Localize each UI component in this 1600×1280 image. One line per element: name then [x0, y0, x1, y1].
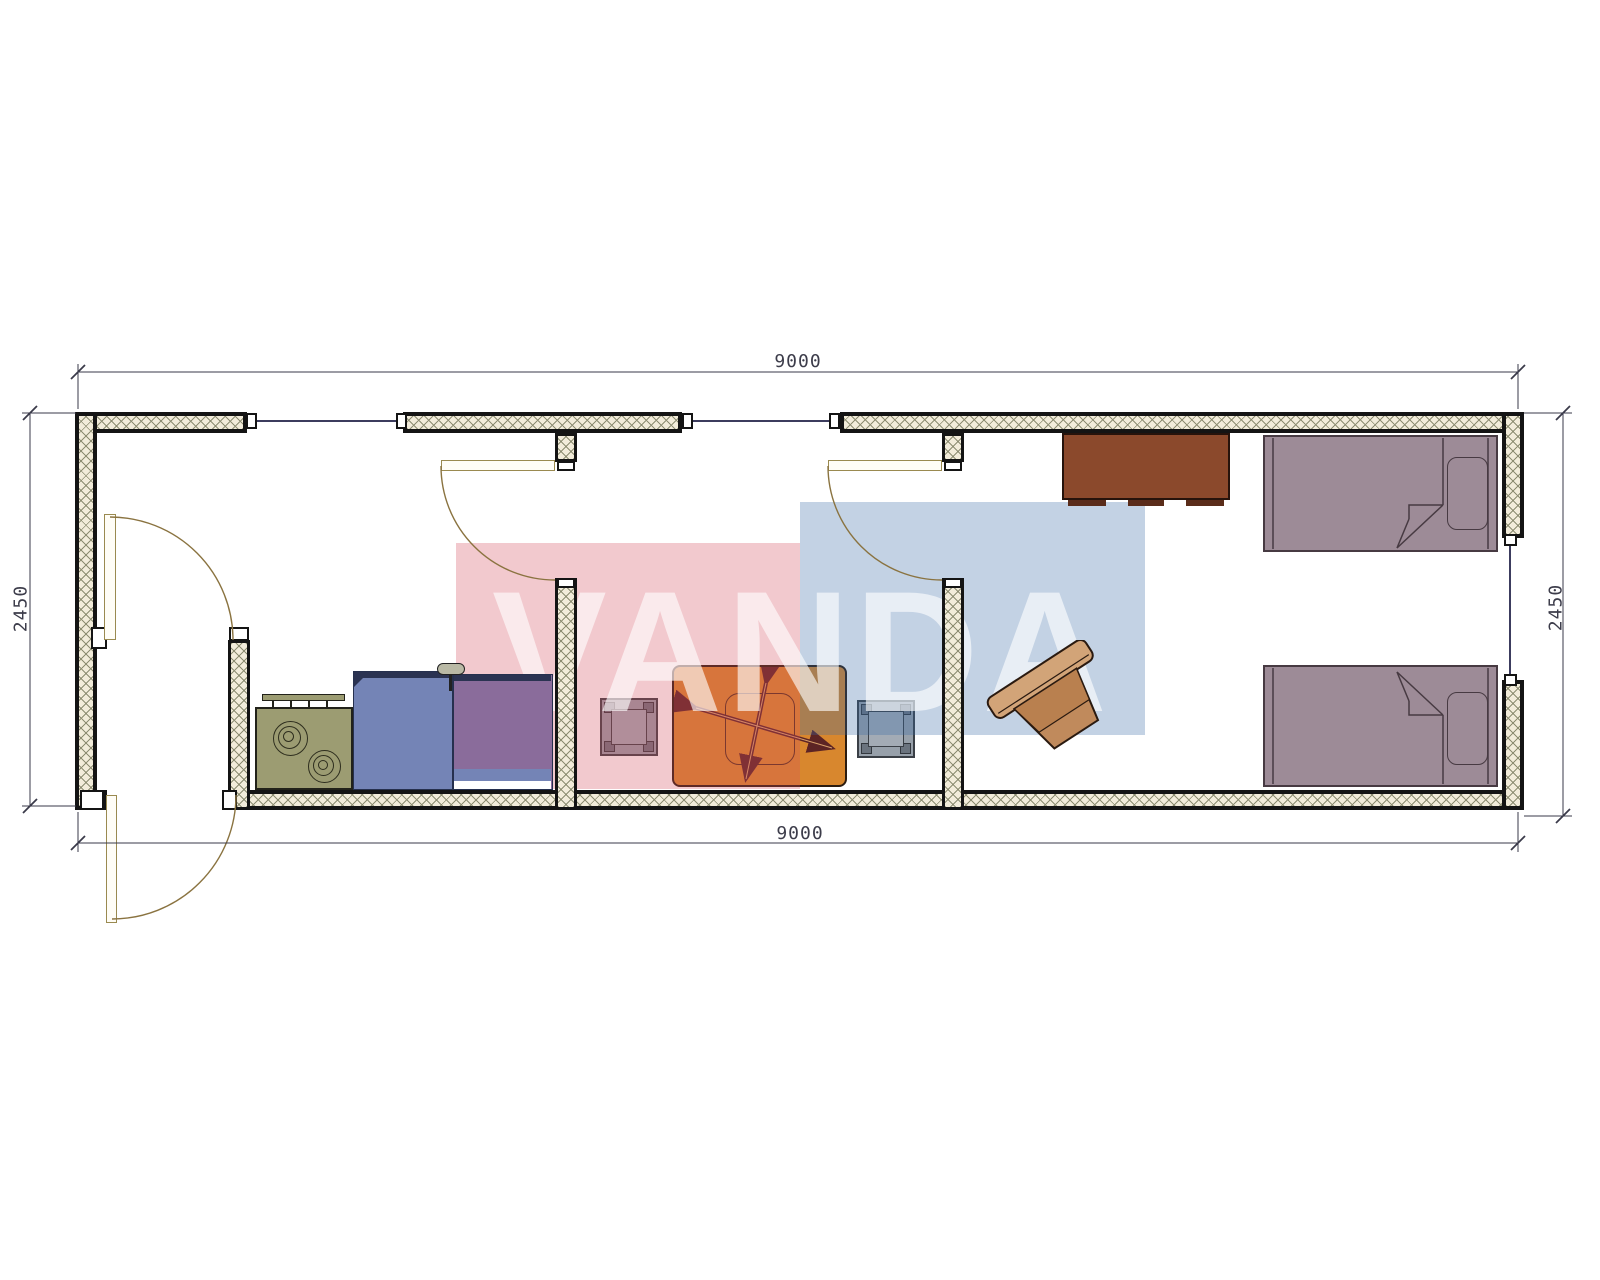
cabinet-foot — [1128, 500, 1164, 506]
partition-entry-kitchen — [228, 640, 250, 810]
dimension-right: 2450 — [1546, 568, 1567, 648]
faucet-stem — [449, 675, 452, 691]
rack-leg — [326, 701, 328, 708]
counter-corner-mark — [354, 678, 363, 687]
window-jamb — [396, 413, 407, 429]
pillow — [1447, 457, 1488, 530]
door-leaf-entrance — [106, 795, 117, 923]
dimension-bottom: 9000 — [760, 823, 840, 844]
dimension-left: 2450 — [11, 569, 32, 649]
rack-leg — [290, 701, 292, 708]
wall-top-segment-2 — [403, 412, 682, 433]
faucet — [437, 663, 465, 675]
door-arc-entrance — [112, 795, 236, 919]
door-jamb — [557, 461, 575, 471]
stove-burner — [273, 721, 308, 756]
dimension-top: 9000 — [758, 351, 838, 372]
window-jamb — [1504, 674, 1517, 686]
window-jamb — [682, 413, 693, 429]
rack-leg — [272, 701, 274, 708]
stove-burner — [308, 750, 341, 783]
sink-base-band — [454, 769, 551, 781]
bed-bottom — [1263, 665, 1498, 787]
sink-base — [454, 781, 551, 789]
floor-plan-canvas: VANDA — [0, 0, 1600, 1280]
stove — [255, 707, 353, 790]
partition-dining-bedroom — [942, 578, 964, 810]
bed-top — [1263, 435, 1498, 552]
door-jamb — [222, 790, 237, 810]
door-jamb — [80, 790, 104, 810]
desk-chair — [985, 640, 1125, 760]
wall-left — [75, 412, 97, 810]
sink-unit — [453, 674, 553, 790]
door-jamb — [557, 578, 575, 588]
door-jamb — [944, 578, 962, 588]
wall-top-segment-1 — [75, 412, 247, 433]
cabinet-foot — [1186, 500, 1224, 506]
kitchen-counter — [353, 671, 453, 790]
wall-right-lower — [1502, 680, 1524, 810]
door-jamb — [944, 461, 962, 471]
partition-stub-bedroom — [942, 433, 964, 462]
cabinet — [1062, 433, 1230, 500]
window-jamb — [1504, 534, 1517, 546]
partition-stub-kitchen — [555, 433, 577, 462]
rack-leg — [308, 701, 310, 708]
cabinet-foot — [1068, 500, 1106, 506]
door-leaf-bedroom — [828, 460, 942, 471]
counter-edge — [354, 672, 451, 678]
partition-kitchen-dining — [555, 578, 577, 810]
sink-edge — [454, 675, 551, 681]
door-leaf-hall — [104, 514, 116, 640]
door-arc-hall — [110, 517, 233, 640]
window-jamb — [246, 413, 257, 429]
door-jamb — [229, 627, 249, 641]
wall-bottom-main — [230, 790, 1524, 810]
wall-top-segment-3 — [840, 412, 1524, 433]
window-jamb — [829, 413, 840, 429]
wall-right-upper — [1502, 412, 1524, 538]
door-leaf-kitchen — [441, 460, 555, 471]
pillow — [1447, 692, 1488, 765]
stove-rack — [262, 694, 345, 701]
